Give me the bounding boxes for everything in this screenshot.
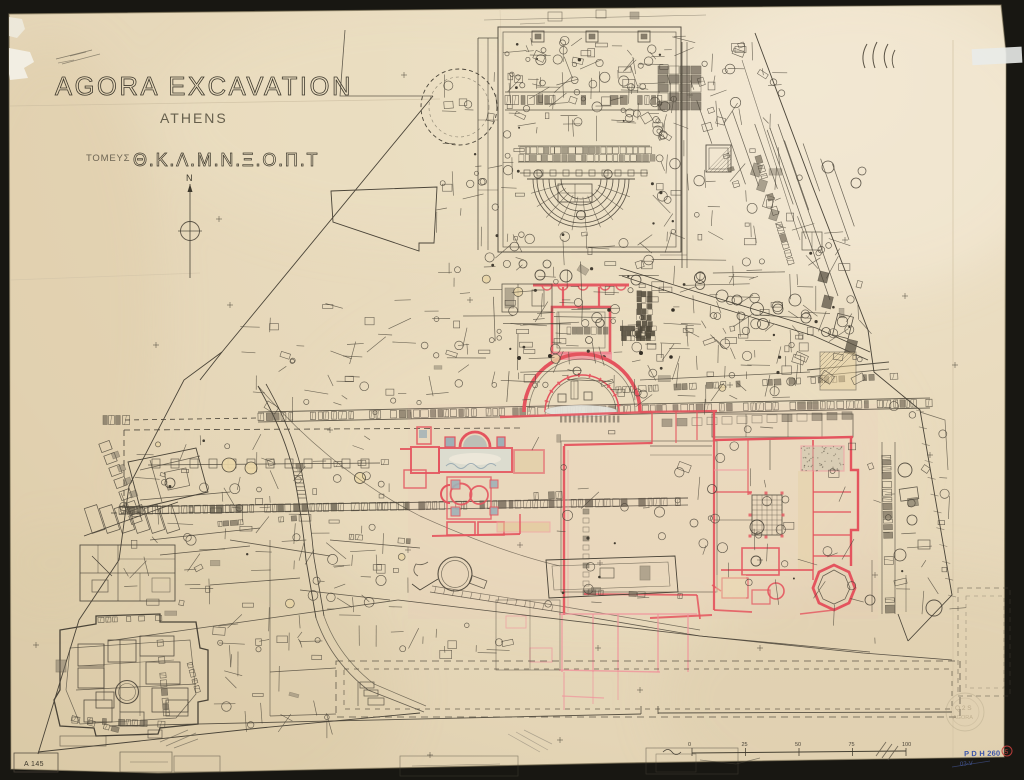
svg-text:AGORA: AGORA bbox=[953, 715, 973, 721]
svg-text:P D H 260: P D H 260 bbox=[964, 749, 1000, 759]
svg-text:25: 25 bbox=[742, 742, 748, 748]
svg-text:100: 100 bbox=[902, 742, 911, 748]
svg-text:Θ.Κ.Λ.Μ.Ν.Ξ.Ο.Π.Τ: Θ.Κ.Λ.Μ.Ν.Ξ.Ο.Π.Τ bbox=[133, 150, 319, 170]
svg-text:A 145: A 145 bbox=[24, 761, 44, 768]
svg-text:TOMEYΣ: TOMEYΣ bbox=[86, 153, 130, 164]
svg-text:ATHENS: ATHENS bbox=[160, 110, 228, 126]
svg-text:Q 2 S: Q 2 S bbox=[955, 705, 972, 712]
svg-text:N: N bbox=[186, 173, 193, 183]
svg-text:AGORA EXCAVATION: AGORA EXCAVATION bbox=[55, 73, 353, 101]
svg-text:50: 50 bbox=[795, 742, 801, 748]
svg-text:0: 0 bbox=[688, 742, 691, 748]
svg-text:75: 75 bbox=[849, 742, 855, 748]
svg-text:5: 5 bbox=[1005, 749, 1009, 756]
